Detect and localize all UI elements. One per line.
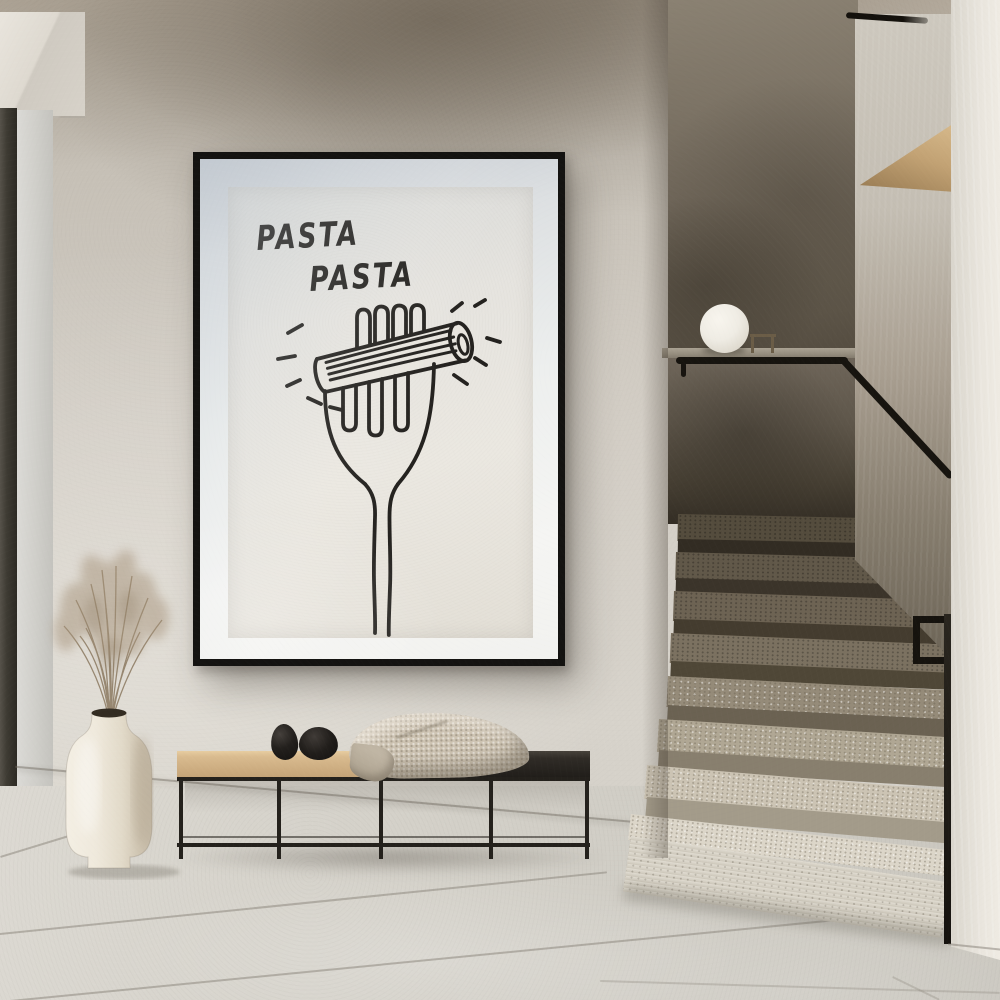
vase-with-pampas-grass [36, 536, 206, 880]
stair-side-wall [855, 14, 952, 660]
pasta-artwork: PASTA PASTA [228, 187, 533, 638]
poster-frame: PASTA PASTA [193, 152, 565, 666]
bench-floor-shadow [175, 846, 605, 874]
landing-parapet-wall [668, 358, 858, 524]
poster-title-line2: PASTA [308, 255, 415, 300]
vase-highlight [76, 738, 100, 834]
poster-paper: PASTA PASTA [228, 187, 533, 638]
fork-head-and-handle [325, 364, 434, 635]
handrail-horizontal [676, 357, 848, 364]
stairwell-back-wall [668, 0, 858, 357]
foreground-right-wall [951, 0, 1000, 960]
interior-scene: PASTA PASTA [0, 0, 1000, 1000]
bench-leg [585, 777, 589, 859]
handrail-end-stub [681, 362, 686, 377]
poster-title-line1: PASTA [255, 214, 360, 259]
door-frame-edge [0, 108, 17, 848]
sphere-lamp [700, 304, 749, 353]
stairwell-corner-shadow [642, 0, 668, 858]
mini-table-leg [771, 337, 774, 353]
bench-frame-bottom-rail [177, 843, 590, 847]
bench-leg [489, 777, 493, 859]
poster-mat: PASTA PASTA [200, 159, 558, 659]
bench-wall-shadow [185, 779, 585, 813]
tile-seam [0, 871, 607, 936]
bench-leg [277, 777, 281, 859]
ceiling-soffit [0, 12, 85, 118]
vase-shade [132, 736, 152, 846]
mini-table-leg [751, 337, 754, 353]
bench-frame-back-rail [180, 836, 587, 838]
tile-seam [600, 980, 1000, 994]
bench-leg [379, 777, 383, 859]
vase-mouth [92, 709, 127, 718]
